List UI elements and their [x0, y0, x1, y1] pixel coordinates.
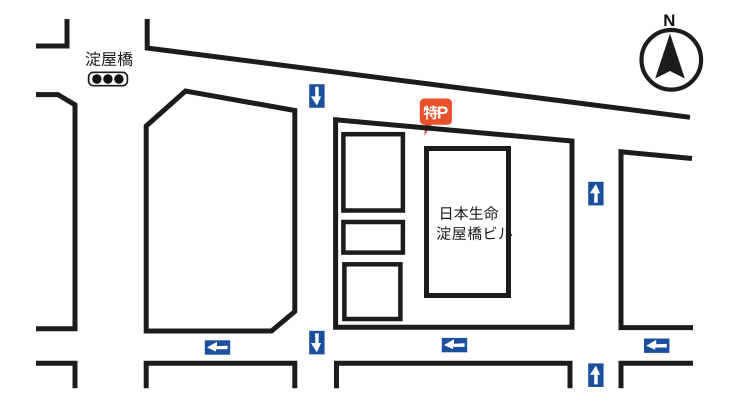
svg-text:P: P: [437, 102, 449, 122]
svg-text:N: N: [663, 11, 675, 30]
